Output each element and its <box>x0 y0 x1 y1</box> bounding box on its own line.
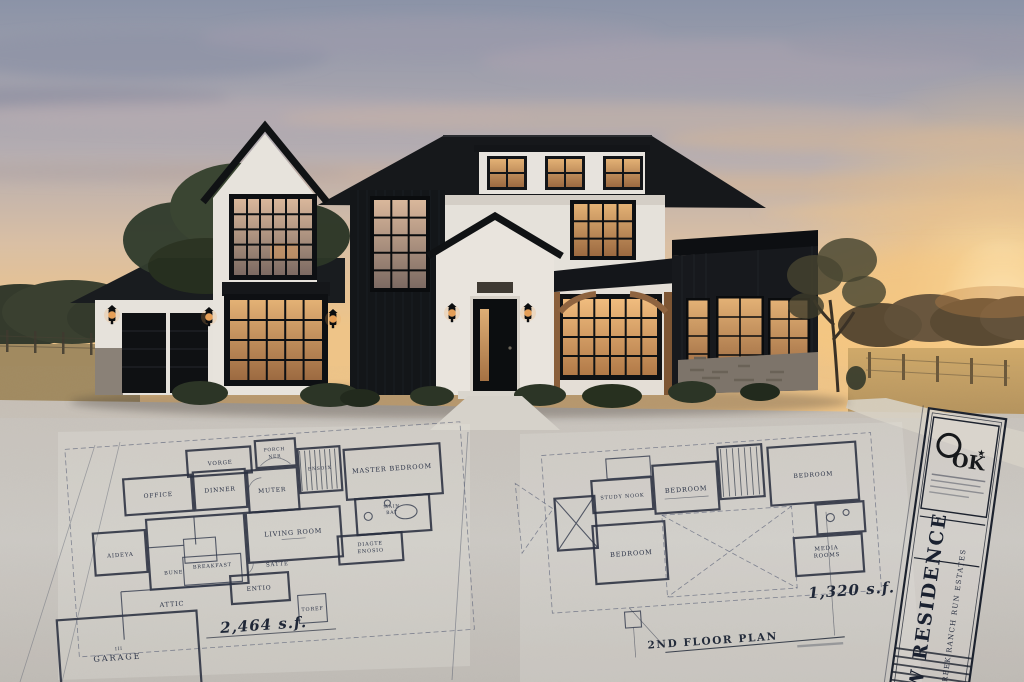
left-gable-upper-window <box>229 194 317 280</box>
scene-svg: VORGE PORCH NER OFFICE DINNER MUTER ENSO… <box>0 0 1024 682</box>
room-label: MAIN <box>383 503 400 510</box>
room-label: BAT <box>386 509 398 516</box>
tall-black-section-window <box>370 196 430 292</box>
room-label: NER <box>268 453 281 460</box>
front-door <box>470 296 520 393</box>
rendering-canvas: VORGE PORCH NER OFFICE DINNER MUTER ENSO… <box>0 0 1024 682</box>
door-handle <box>508 346 511 349</box>
porch-window <box>558 294 662 380</box>
dormer-window-2 <box>545 156 585 190</box>
door-glass <box>480 309 489 381</box>
upper-right-window <box>570 200 636 260</box>
entry-plaque <box>477 282 513 293</box>
stone-wainscot-left <box>95 348 123 395</box>
left-gable-bay-window <box>224 294 328 386</box>
garage-doors <box>122 313 208 393</box>
dormer-window-1 <box>487 156 527 190</box>
logo-star-icon: ★ <box>976 448 985 459</box>
dormer <box>474 145 650 195</box>
bay-window-header <box>222 282 330 296</box>
room-label: III <box>115 646 123 653</box>
dormer-window-3 <box>603 156 643 190</box>
